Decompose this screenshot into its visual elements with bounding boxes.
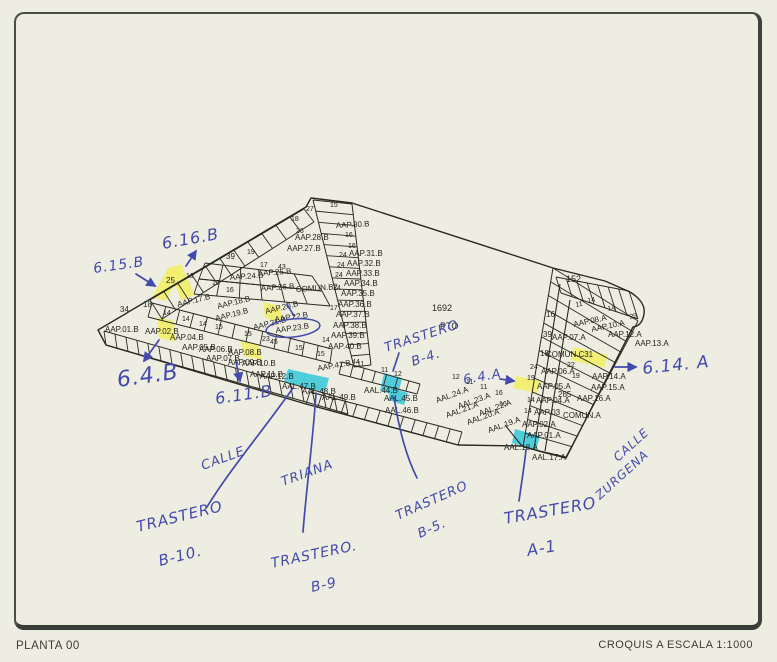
parcel-divider bbox=[406, 381, 409, 391]
parcel-label: 34 bbox=[120, 305, 129, 314]
parcel-label: 44 bbox=[352, 359, 360, 366]
handwritten-annotation: B-5. bbox=[416, 516, 449, 542]
parcel-label: 18 bbox=[291, 216, 299, 223]
parcel-label: 14 bbox=[199, 321, 207, 328]
plan-name-label: PLANTA 00 bbox=[16, 640, 80, 652]
handwritten-annotation: A-1 bbox=[524, 536, 558, 560]
parcel-divider bbox=[361, 368, 364, 379]
parcel-label: 1692 bbox=[432, 303, 452, 313]
parcel-label: AAP.36.B bbox=[338, 300, 372, 309]
parcel-divider bbox=[423, 423, 427, 436]
parcel-label: 29 bbox=[629, 312, 638, 320]
parcel-label: 16 bbox=[495, 390, 503, 397]
parcel-label: AAP.01.B bbox=[105, 325, 139, 334]
parcel-label: AAP.02.A bbox=[522, 420, 556, 429]
parcel-divider bbox=[446, 429, 450, 442]
parcel-divider bbox=[276, 226, 286, 240]
parcel-divider bbox=[458, 432, 462, 445]
pen-leader-line bbox=[519, 450, 526, 501]
parcel-label: AAP.13.A bbox=[635, 339, 669, 348]
parcel-label: AAP.04.B bbox=[170, 333, 204, 342]
parcel-label: AAP.06.A bbox=[541, 367, 575, 376]
parcel-label: AAL.46.B bbox=[385, 406, 419, 415]
parcel-divider bbox=[288, 338, 290, 352]
scale-label: CROQUIS A ESCALA 1:1000 bbox=[598, 639, 753, 651]
parcel-divider bbox=[376, 410, 380, 422]
parcel-label: 24 bbox=[339, 252, 347, 259]
parcel-label: AAP.31.B bbox=[349, 249, 383, 258]
parcel-label: 14 bbox=[163, 310, 171, 317]
parcel-divider bbox=[137, 340, 139, 354]
parcel-label: 14 bbox=[524, 408, 532, 415]
handwritten-annotation: TRASTERO bbox=[383, 318, 461, 356]
pen-arrow bbox=[136, 274, 155, 286]
parcel-label: AAP.38.B bbox=[333, 321, 367, 330]
parcel-label: 15 bbox=[215, 324, 223, 331]
parcel-divider bbox=[262, 234, 273, 249]
parcel-label: AAP.40.B bbox=[328, 342, 362, 351]
handwritten-annotation: 6.4.A bbox=[462, 366, 503, 387]
pen-leader-line bbox=[393, 353, 399, 371]
parcel-label: 14 bbox=[527, 397, 535, 404]
parcel-label: 25 bbox=[166, 276, 175, 285]
parcel-label: 11 bbox=[575, 301, 584, 309]
handwritten-annotation: TRASTERO bbox=[394, 478, 471, 523]
parcel-label: AAP.34.B bbox=[344, 279, 378, 288]
parcel-label: 14 bbox=[587, 296, 596, 304]
parcel-label: AAP.35.B bbox=[341, 289, 375, 298]
parcel-label: AAP.12.A bbox=[608, 330, 642, 339]
parcel-divider bbox=[115, 334, 117, 348]
parcel-label: 12 bbox=[394, 371, 402, 378]
parcel-label: 12 bbox=[452, 374, 460, 381]
parcel-label: 15 bbox=[330, 202, 338, 209]
parcel-divider bbox=[364, 407, 368, 419]
floor-plan-drawing: 27151826AAP.30.B16AAP.28.B16AAP.27.B24AA… bbox=[0, 0, 777, 662]
parcel-label: AAL.17.A bbox=[532, 453, 566, 462]
parcel-label: AAP.04.A bbox=[536, 396, 570, 405]
parcel-label: 18 bbox=[143, 300, 152, 309]
parcel-label: 27 bbox=[306, 206, 314, 213]
parcel-label: 16 bbox=[345, 232, 353, 239]
parcel-divider bbox=[232, 324, 235, 338]
handwritten-annotation: 6.11.B bbox=[214, 381, 274, 408]
pen-arrow bbox=[186, 251, 196, 266]
parcel-label: 14 bbox=[182, 316, 190, 323]
parcel-divider bbox=[203, 359, 205, 373]
parcel-divider bbox=[190, 314, 194, 328]
handwritten-annotation: 6.14. A bbox=[641, 352, 710, 379]
parcel-label: AAP.07.A bbox=[552, 333, 586, 342]
parcel-divider bbox=[316, 211, 354, 215]
parcel-label: AAP.03 bbox=[534, 408, 561, 417]
handwritten-annotation: 6.16.B bbox=[160, 224, 220, 253]
handwritten-annotation: B-4. bbox=[410, 346, 443, 369]
parcel-label: 15 bbox=[295, 345, 303, 352]
parcel-divider bbox=[351, 354, 369, 356]
parcel-divider bbox=[225, 365, 228, 380]
parcel-divider bbox=[126, 337, 128, 351]
handwritten-annotation: TRASTERO bbox=[502, 493, 597, 528]
parcel-divider bbox=[388, 414, 392, 427]
parcel-label: AAP.28.B bbox=[295, 233, 329, 242]
parcel-label: AAP.32.B bbox=[347, 259, 381, 268]
parcel-label: 15 bbox=[317, 351, 325, 358]
parcel-divider bbox=[214, 362, 216, 376]
parcel-label: AAP.01.A bbox=[527, 431, 561, 440]
parcel-divider bbox=[353, 404, 357, 416]
parcel-divider bbox=[159, 346, 161, 360]
handwritten-annotation: B-10. bbox=[157, 542, 204, 570]
parcel-label: AAP.26.B bbox=[261, 282, 295, 293]
parcel-label: AAL.49.B bbox=[322, 393, 356, 402]
parcel-label: AAL.45.B bbox=[384, 394, 418, 403]
parcel-label: AAP.30.B bbox=[336, 219, 370, 230]
parcel-label: 19 bbox=[572, 373, 580, 380]
handwritten-annotation: TRASTERO. bbox=[270, 538, 359, 572]
parcel-label: AAP.39.B bbox=[331, 331, 365, 340]
parcel-label: 15 bbox=[244, 331, 252, 338]
parcel-label: AAP.08.B bbox=[228, 348, 262, 357]
parcel-label: 24 bbox=[337, 262, 345, 269]
parcel-label: 19 bbox=[247, 249, 255, 256]
handwritten-annotation: CALLE bbox=[199, 444, 247, 474]
parcel-label: 11 bbox=[480, 384, 487, 391]
parcel-divider bbox=[341, 401, 345, 413]
parcel-label: 16 bbox=[226, 287, 234, 294]
parcel-divider bbox=[176, 310, 180, 324]
parcel-divider bbox=[234, 250, 245, 266]
parcel-label: AAP.25.B bbox=[258, 267, 292, 278]
parcel-divider bbox=[435, 426, 439, 439]
parcel-label: COMUN.C31 bbox=[546, 350, 594, 359]
parcel-label: AAP.10.B bbox=[242, 359, 276, 368]
parcel-divider bbox=[192, 356, 194, 370]
parcel-label: 11 bbox=[381, 367, 388, 374]
parcel-label: 24 bbox=[335, 272, 343, 279]
parcel-label: 24 bbox=[530, 364, 538, 371]
parcel-label: 17 bbox=[212, 280, 220, 287]
parcel-label: 45 bbox=[270, 339, 278, 346]
parcel-label: 16 bbox=[499, 401, 507, 408]
parcel-label: AAL.18.A bbox=[504, 443, 538, 452]
parcel-divider bbox=[322, 291, 330, 306]
parcel-divider bbox=[372, 371, 375, 382]
parcel-label: COMUN.A bbox=[563, 411, 601, 420]
parcel-label: 39 bbox=[226, 252, 235, 261]
parcel-label: 19 bbox=[527, 375, 535, 382]
parcel-label: 152 bbox=[566, 274, 581, 284]
parcel-label: AAP.14.A bbox=[592, 372, 626, 381]
handwritten-annotation: B-9 bbox=[310, 575, 339, 596]
handwritten-annotation: TRASTERO bbox=[135, 497, 225, 536]
handwritten-annotation: 6.4.B bbox=[115, 360, 180, 393]
parcel-label: 14 bbox=[607, 304, 616, 312]
handwritten-annotation: 6.15.B bbox=[92, 254, 145, 277]
parcel-divider bbox=[417, 384, 420, 394]
parcel-divider bbox=[220, 265, 223, 281]
parcel-label: AAP.16.A bbox=[577, 394, 611, 403]
parcel-label: 16 bbox=[186, 273, 194, 280]
parcel-label: 23 bbox=[262, 336, 270, 343]
parcel-label: AAP.15.A bbox=[591, 383, 625, 392]
parcel-label: AAP.37.B bbox=[336, 310, 370, 319]
parcel-label: 16 bbox=[546, 310, 555, 319]
parcel-label: AAP.12.B bbox=[260, 372, 294, 381]
parcel-divider bbox=[181, 353, 183, 367]
parcel-label: AAP.27.B bbox=[287, 244, 321, 253]
parcel-divider bbox=[411, 420, 415, 433]
parcel-label: COMUN.B2 bbox=[296, 282, 339, 294]
parcel-label: AAP.33.B bbox=[346, 269, 380, 278]
